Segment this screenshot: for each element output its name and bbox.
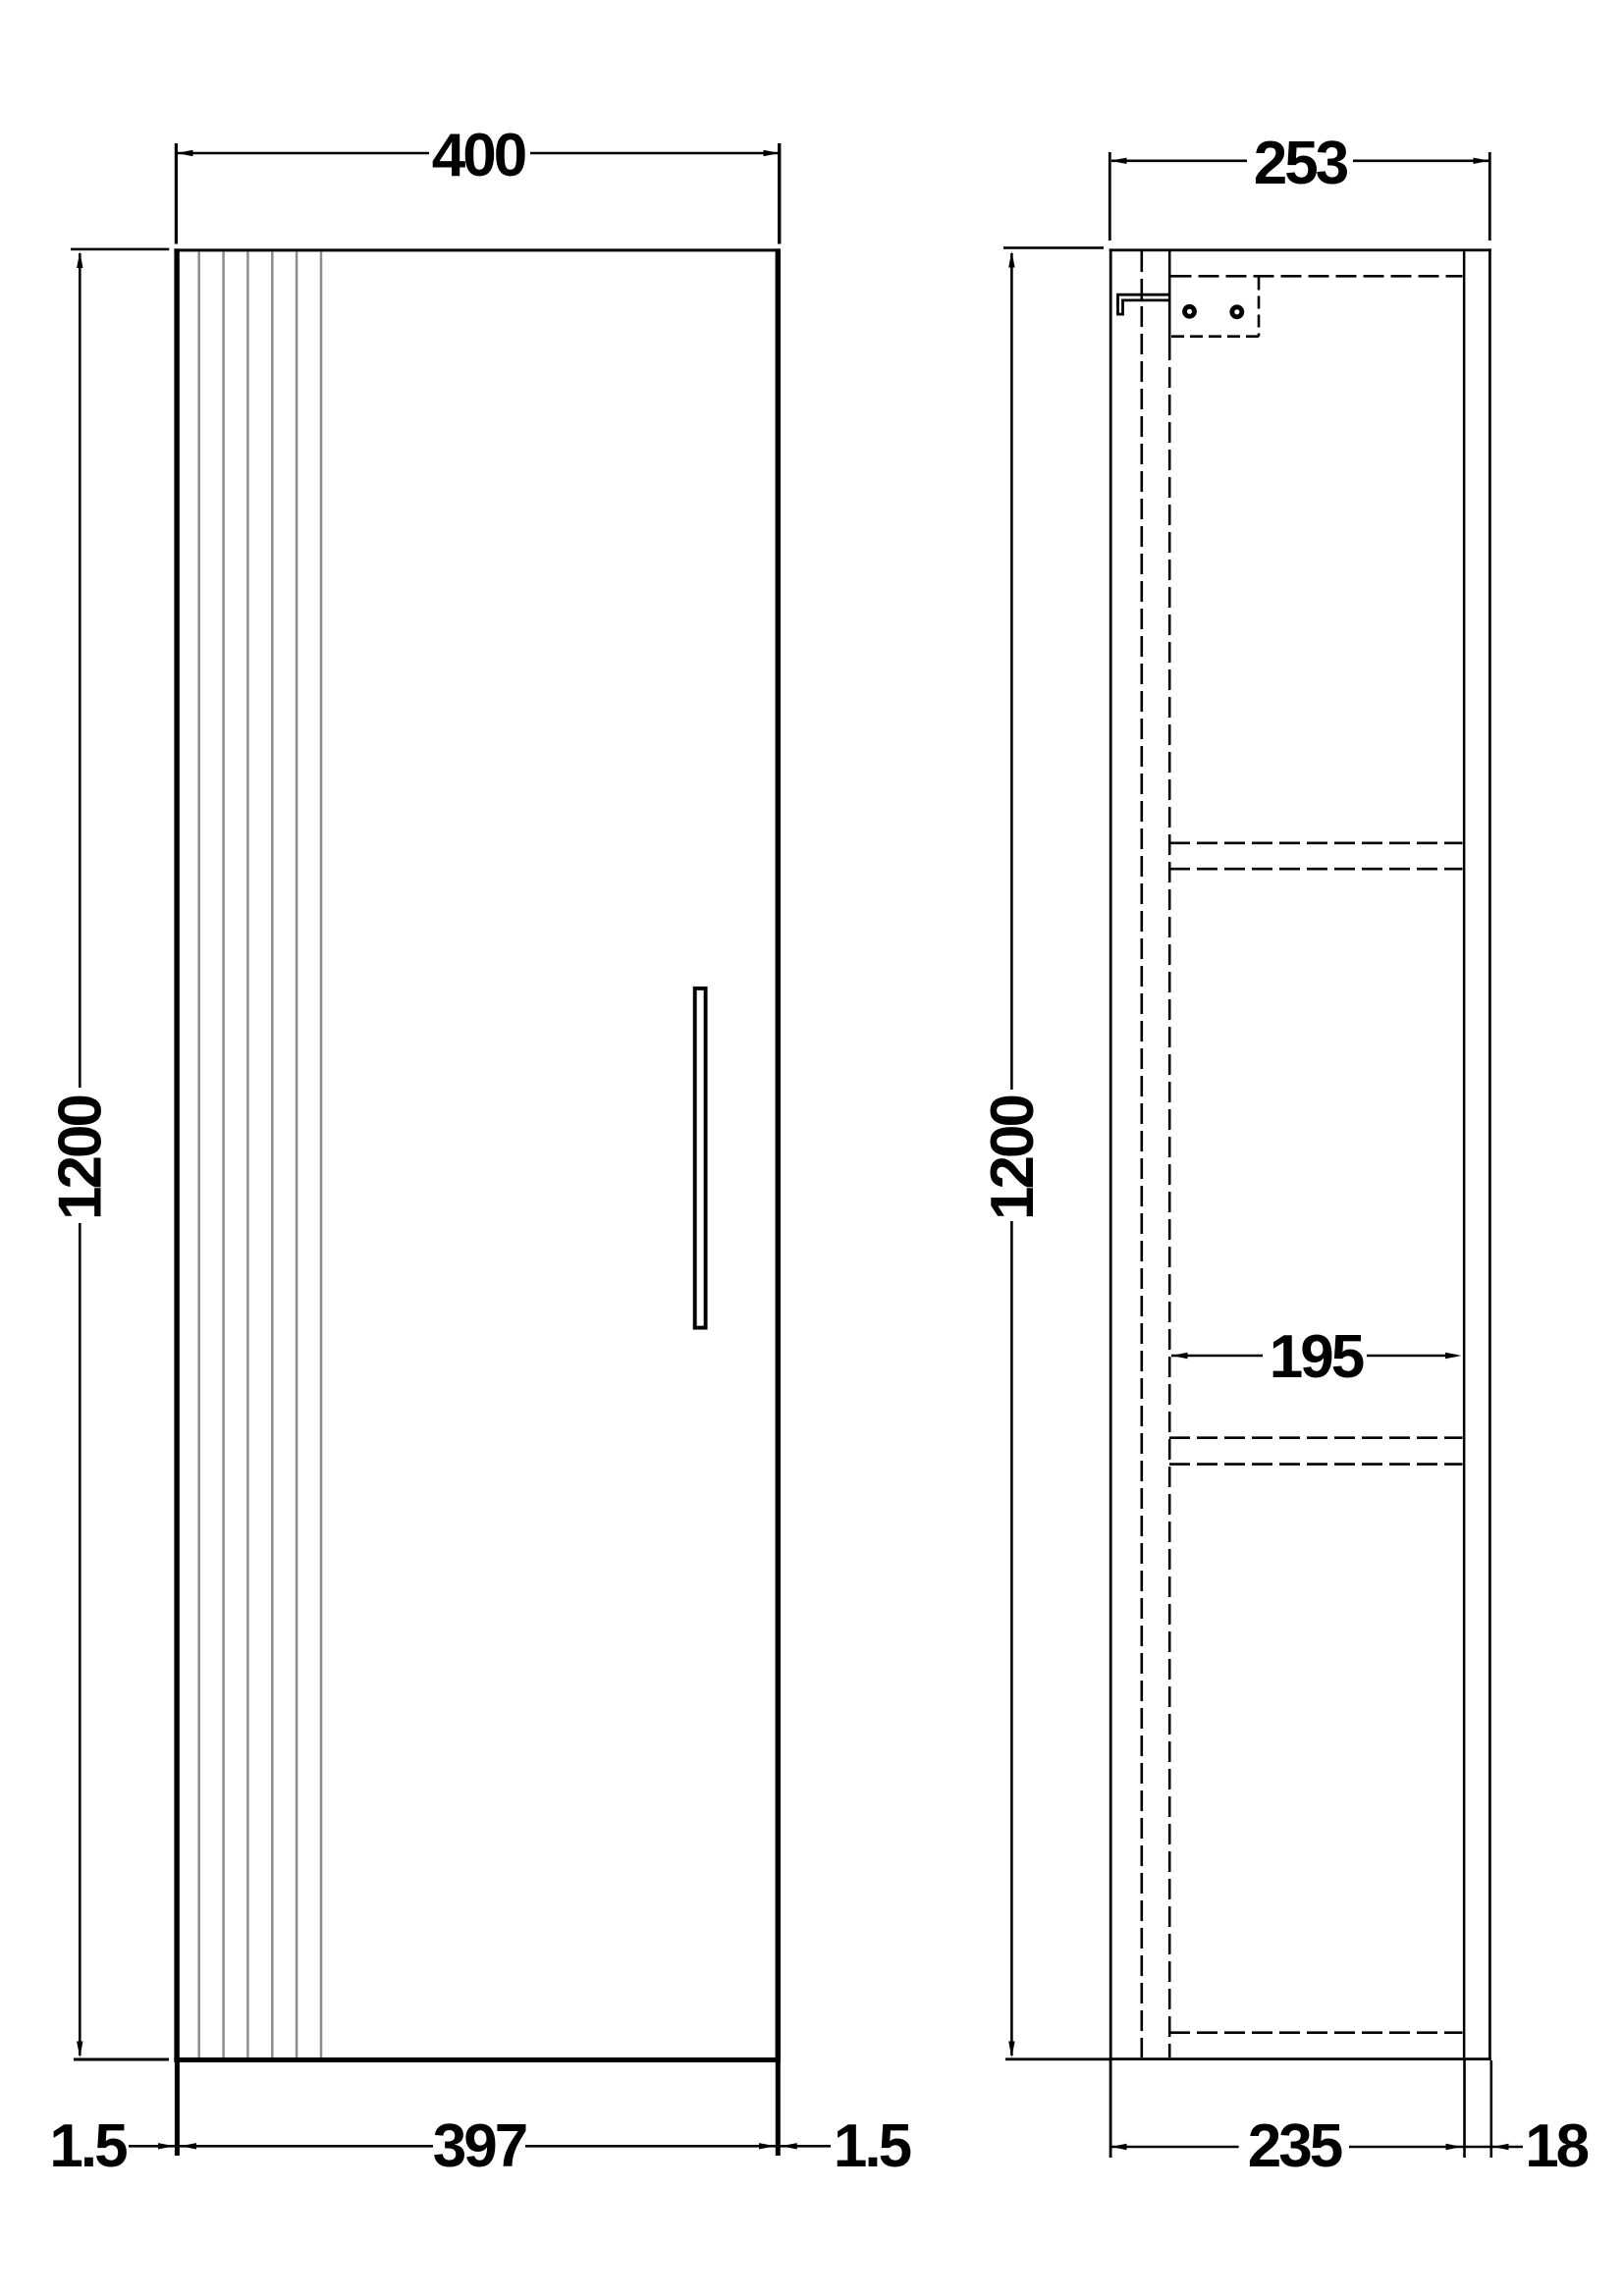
svg-text:1.5: 1.5: [49, 2112, 127, 2180]
svg-text:1200: 1200: [979, 1096, 1047, 1220]
svg-text:400: 400: [432, 122, 525, 189]
svg-text:1.5: 1.5: [834, 2112, 911, 2180]
svg-text:1200: 1200: [46, 1096, 114, 1220]
svg-text:18: 18: [1525, 2112, 1588, 2180]
svg-text:195: 195: [1270, 1323, 1364, 1391]
svg-text:253: 253: [1254, 130, 1348, 197]
svg-text:397: 397: [433, 2112, 526, 2180]
svg-text:235: 235: [1248, 2112, 1342, 2180]
